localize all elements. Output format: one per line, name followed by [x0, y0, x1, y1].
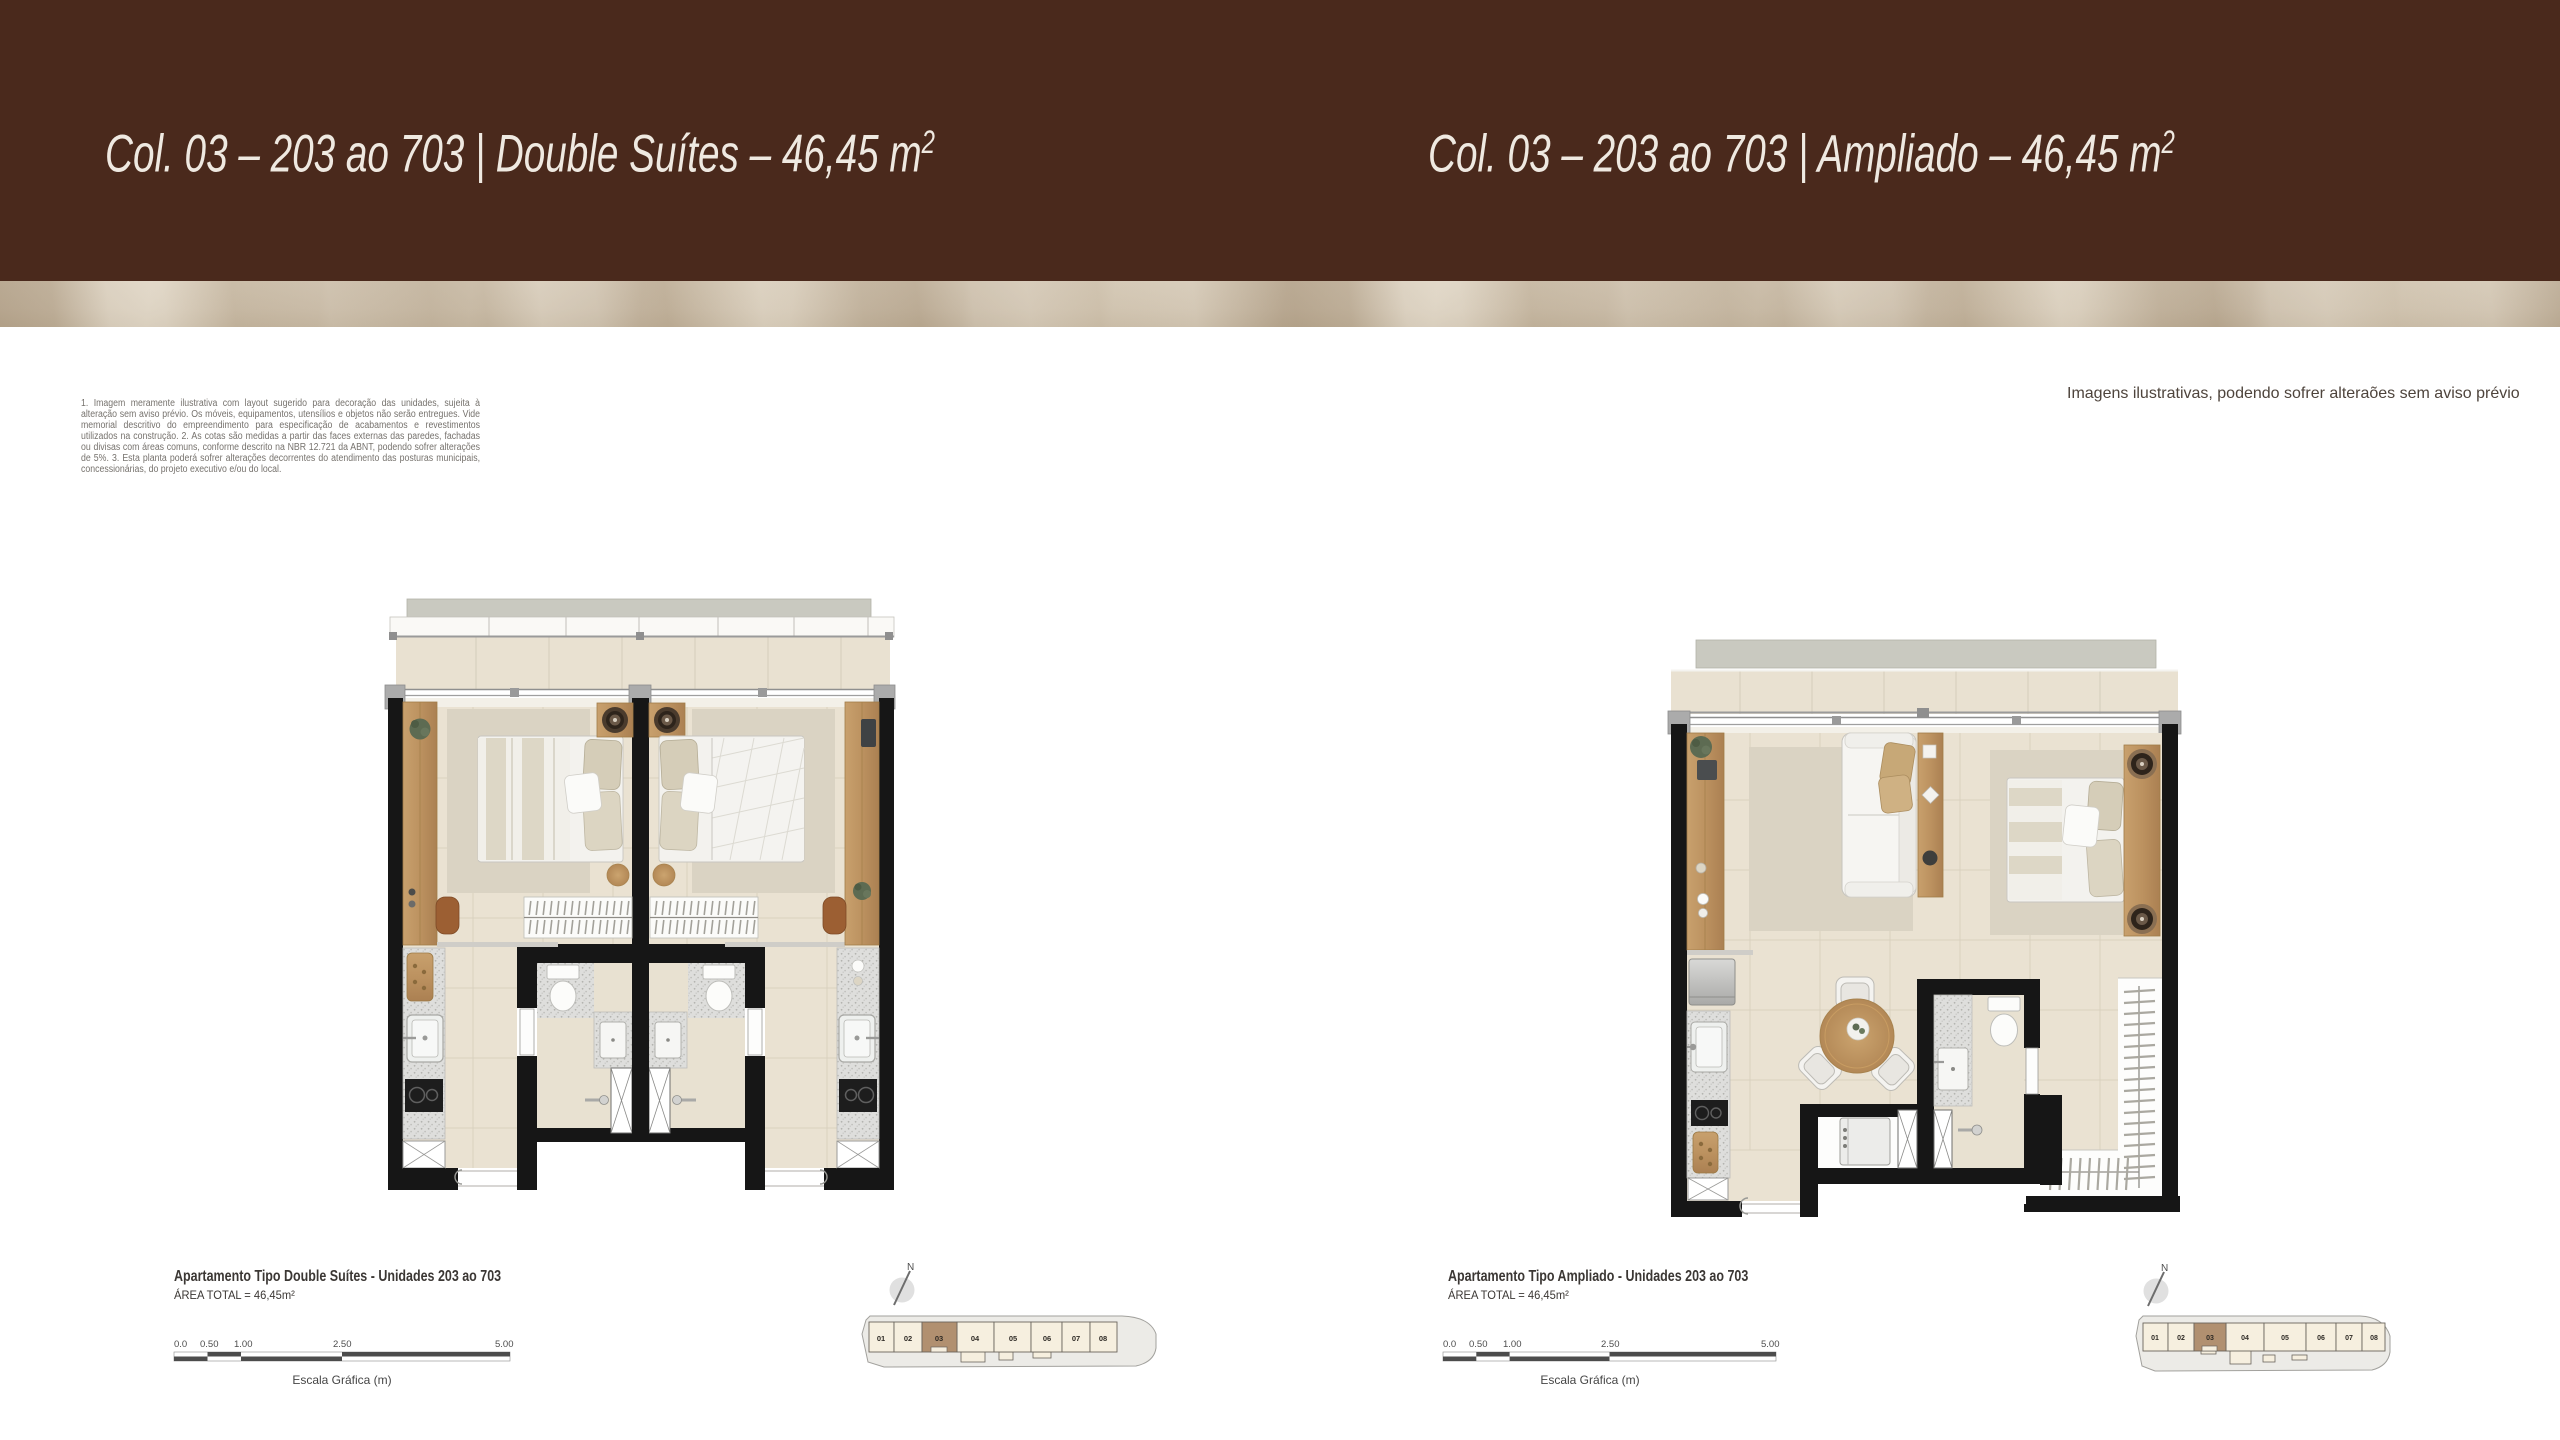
- svg-text:01: 01: [2151, 1335, 2159, 1342]
- svg-text:Escala Gráfica (m): Escala Gráfica (m): [1540, 1373, 1639, 1387]
- svg-text:02: 02: [2177, 1335, 2185, 1342]
- svg-text:08: 08: [2370, 1335, 2378, 1342]
- svg-text:03: 03: [935, 1334, 943, 1343]
- svg-text:5.00: 5.00: [495, 1339, 514, 1350]
- svg-text:04: 04: [2241, 1335, 2249, 1342]
- svg-text:0.50: 0.50: [200, 1339, 219, 1350]
- svg-text:04: 04: [971, 1334, 980, 1343]
- svg-text:0.0: 0.0: [174, 1339, 187, 1350]
- svg-text:06: 06: [2317, 1335, 2325, 1342]
- svg-text:1.00: 1.00: [1503, 1339, 1522, 1350]
- svg-text:05: 05: [1009, 1334, 1017, 1343]
- svg-text:07: 07: [2345, 1335, 2353, 1342]
- svg-text:2.50: 2.50: [1601, 1339, 1620, 1350]
- svg-text:05: 05: [2281, 1335, 2289, 1342]
- svg-text:07: 07: [1072, 1334, 1080, 1343]
- svg-text:0.50: 0.50: [1469, 1339, 1488, 1350]
- svg-text:N: N: [907, 1262, 914, 1273]
- svg-text:01: 01: [877, 1334, 885, 1343]
- svg-text:02: 02: [904, 1334, 912, 1343]
- svg-text:1.00: 1.00: [234, 1339, 253, 1350]
- svg-text:5.00: 5.00: [1761, 1339, 1780, 1350]
- svg-text:Escala Gráfica (m): Escala Gráfica (m): [292, 1373, 391, 1387]
- svg-text:0.0: 0.0: [1443, 1339, 1456, 1350]
- svg-text:N: N: [2161, 1263, 2168, 1274]
- svg-text:06: 06: [1043, 1334, 1051, 1343]
- svg-text:08: 08: [1099, 1334, 1107, 1343]
- svg-text:03: 03: [2206, 1335, 2214, 1342]
- svg-text:2.50: 2.50: [333, 1339, 352, 1350]
